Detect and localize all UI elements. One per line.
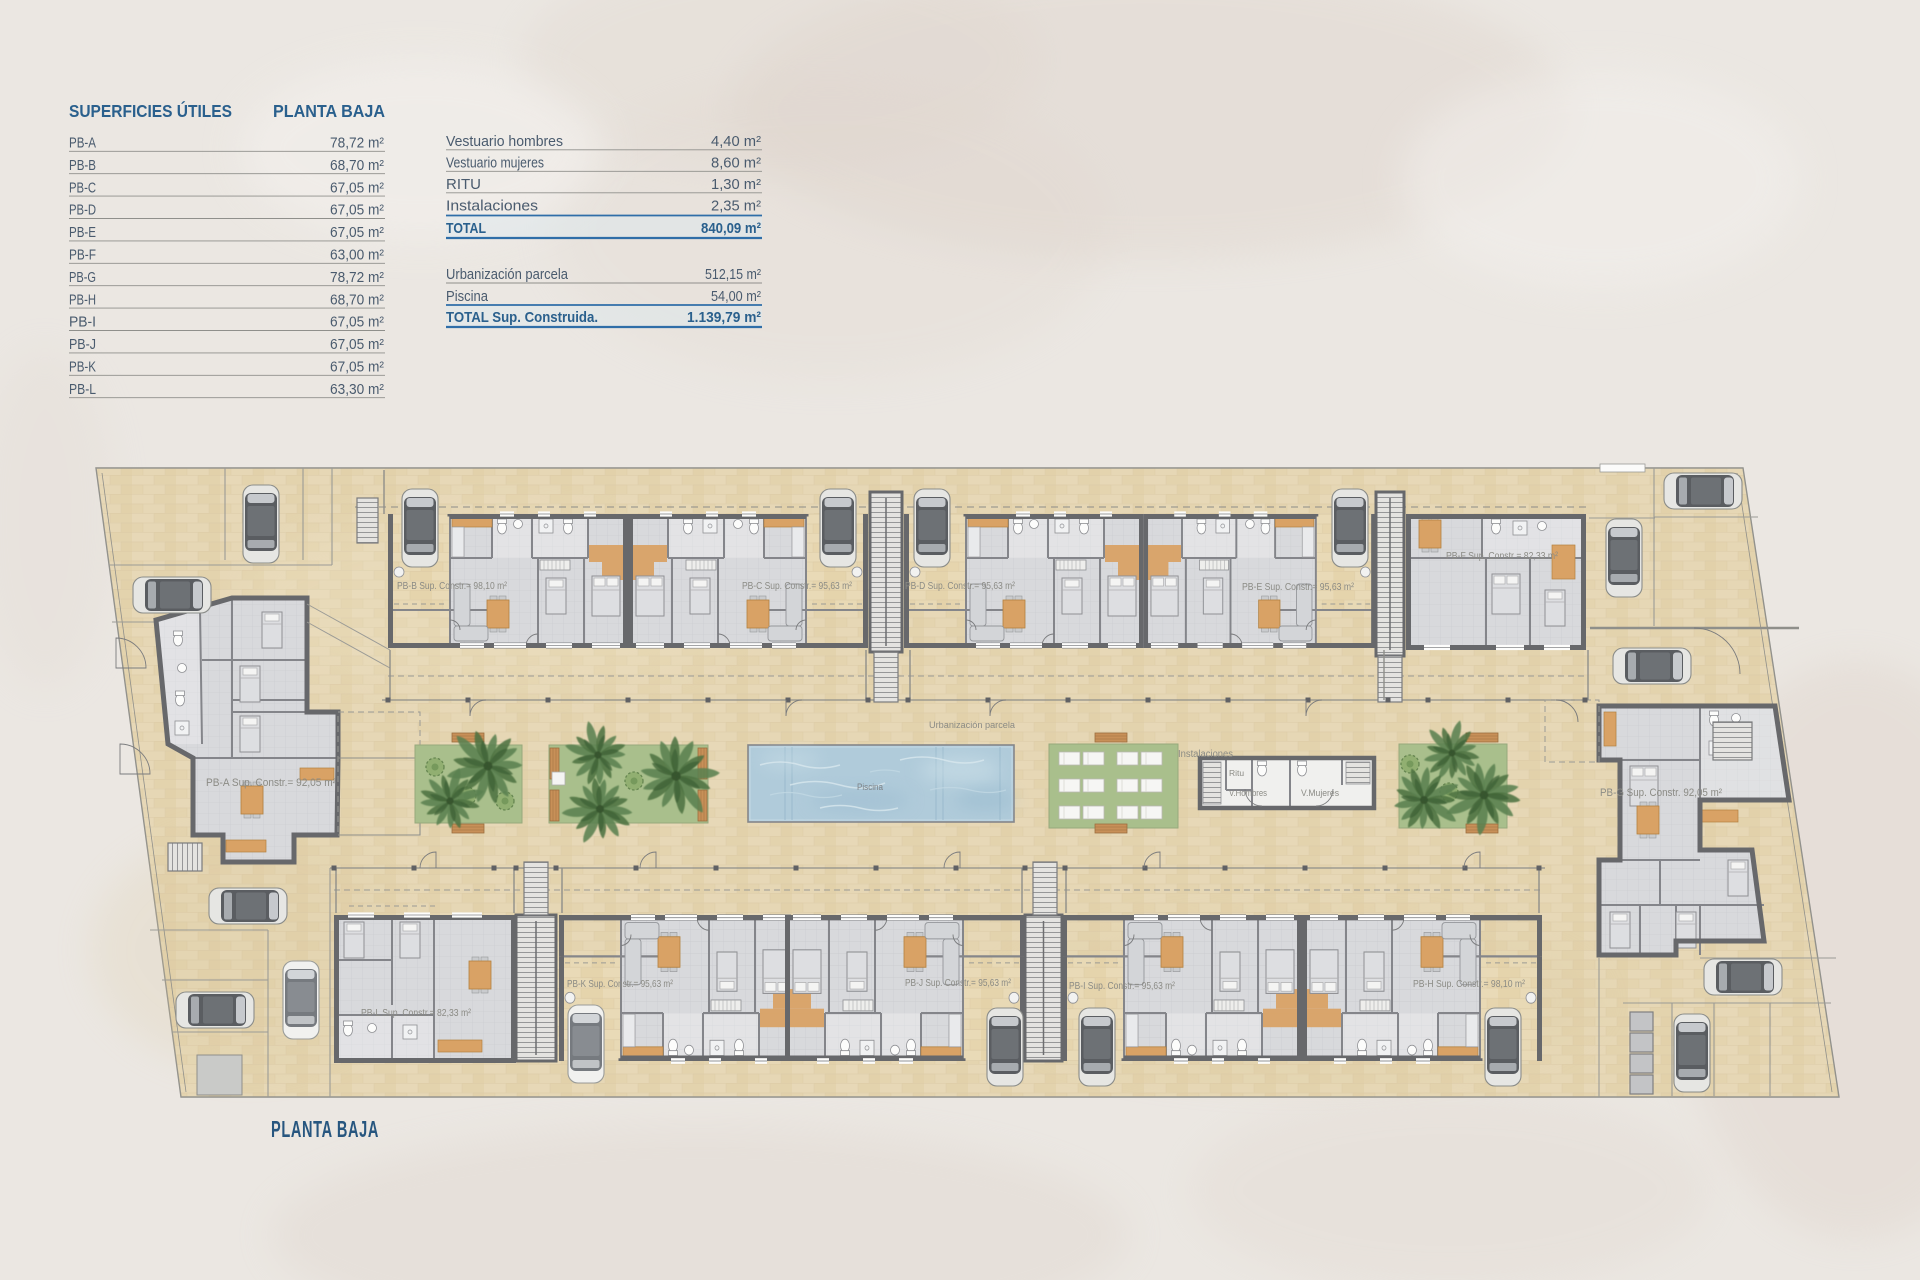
svg-text:78,72 m²: 78,72 m² bbox=[330, 270, 384, 286]
svg-text:PB-J Sup. Constr.= 95,63 m²: PB-J Sup. Constr.= 95,63 m² bbox=[905, 977, 1011, 989]
svg-text:512,15 m²: 512,15 m² bbox=[705, 267, 761, 283]
svg-text:PB-G Sup. Constr. 92,05 m²: PB-G Sup. Constr. 92,05 m² bbox=[1600, 787, 1722, 799]
svg-text:67,05 m²: 67,05 m² bbox=[330, 180, 384, 196]
svg-text:Instalaciones: Instalaciones bbox=[1178, 749, 1233, 760]
svg-text:PB-C Sup. Constr.= 95,63 m²: PB-C Sup. Constr.= 95,63 m² bbox=[742, 580, 852, 592]
svg-text:54,00 m²: 54,00 m² bbox=[711, 289, 761, 305]
svg-text:PB-L: PB-L bbox=[69, 382, 96, 398]
svg-text:PB-L Sup. Constr.= 82,33 m²: PB-L Sup. Constr.= 82,33 m² bbox=[361, 1007, 471, 1019]
svg-text:PB-B Sup. Constr.= 98,10 m²: PB-B Sup. Constr.= 98,10 m² bbox=[397, 580, 507, 592]
svg-text:840,09 m²: 840,09 m² bbox=[701, 220, 761, 237]
svg-text:PB-D: PB-D bbox=[69, 203, 96, 219]
svg-text:PB-G: PB-G bbox=[69, 270, 96, 286]
svg-text:Ritu: Ritu bbox=[1229, 768, 1244, 778]
svg-text:2,35 m²: 2,35 m² bbox=[711, 199, 761, 215]
svg-text:68,70 m²: 68,70 m² bbox=[330, 158, 384, 174]
svg-text:V.Mujeres: V.Mujeres bbox=[1301, 788, 1339, 798]
svg-text:Vestuario hombres: Vestuario hombres bbox=[446, 134, 563, 150]
svg-text:Instalaciones: Instalaciones bbox=[446, 199, 538, 215]
svg-text:PB-E: PB-E bbox=[69, 225, 96, 241]
svg-text:67,05 m²: 67,05 m² bbox=[330, 225, 384, 241]
svg-text:PB-A: PB-A bbox=[69, 136, 96, 152]
svg-text:PB-I: PB-I bbox=[69, 315, 96, 331]
svg-text:63,30 m²: 63,30 m² bbox=[330, 382, 384, 398]
svg-text:PLANTA BAJA: PLANTA BAJA bbox=[273, 101, 385, 121]
svg-text:4,40 m²: 4,40 m² bbox=[711, 134, 761, 150]
svg-text:PB-I Sup. Constr.= 95,63 m²: PB-I Sup. Constr.= 95,63 m² bbox=[1069, 980, 1175, 992]
svg-text:8,60 m²: 8,60 m² bbox=[711, 156, 761, 172]
svg-text:78,72 m²: 78,72 m² bbox=[330, 136, 384, 152]
svg-text:68,70 m²: 68,70 m² bbox=[330, 292, 384, 308]
svg-text:PB-F Sup. Constr = 82,33 m²: PB-F Sup. Constr = 82,33 m² bbox=[1446, 550, 1558, 562]
svg-text:PB-H: PB-H bbox=[69, 292, 96, 308]
svg-text:RITU: RITU bbox=[446, 177, 481, 193]
svg-text:PB-C: PB-C bbox=[69, 180, 96, 196]
svg-text:PB-A Sup. Constr.= 92,05 m²: PB-A Sup. Constr.= 92,05 m² bbox=[206, 777, 336, 789]
svg-text:Piscina: Piscina bbox=[446, 289, 489, 305]
svg-text:SUPERFICIES ÚTILES: SUPERFICIES ÚTILES bbox=[69, 100, 232, 121]
svg-text:PB-F: PB-F bbox=[69, 248, 96, 264]
svg-text:PLANTA BAJA: PLANTA BAJA bbox=[271, 1116, 379, 1142]
svg-text:1.139,79 m²: 1.139,79 m² bbox=[687, 309, 761, 326]
svg-text:Piscina: Piscina bbox=[857, 782, 883, 792]
svg-text:V.Hombres: V.Hombres bbox=[1229, 788, 1267, 798]
svg-text:Vestuario mujeres: Vestuario mujeres bbox=[446, 156, 544, 172]
svg-text:Urbanización parcela: Urbanización parcela bbox=[446, 267, 569, 283]
svg-text:PB-D Sup. Constr.= 95,63 m²: PB-D Sup. Constr.= 95,63 m² bbox=[905, 580, 1015, 592]
svg-text:PB-H Sup. Constr.= 98,10 m²: PB-H Sup. Constr.= 98,10 m² bbox=[1413, 978, 1525, 990]
svg-text:TOTAL: TOTAL bbox=[446, 220, 486, 237]
svg-text:63,00 m²: 63,00 m² bbox=[330, 248, 384, 264]
svg-text:PB-K Sup. Constr.= 95,63 m²: PB-K Sup. Constr.= 95,63 m² bbox=[567, 978, 673, 990]
svg-text:1,30 m²: 1,30 m² bbox=[711, 177, 761, 193]
svg-text:67,05 m²: 67,05 m² bbox=[330, 315, 384, 331]
svg-text:PB-J: PB-J bbox=[69, 337, 96, 353]
svg-text:PB-E Sup. Constr.= 95,63 m²: PB-E Sup. Constr.= 95,63 m² bbox=[1242, 581, 1354, 593]
svg-text:PB-B: PB-B bbox=[69, 158, 96, 174]
svg-text:67,05 m²: 67,05 m² bbox=[330, 337, 384, 353]
svg-text:PB-K: PB-K bbox=[69, 360, 96, 376]
svg-text:TOTAL Sup. Construida.: TOTAL Sup. Construida. bbox=[446, 309, 598, 326]
svg-text:67,05 m²: 67,05 m² bbox=[330, 360, 384, 376]
svg-text:Urbanización parcela: Urbanización parcela bbox=[929, 720, 1015, 730]
svg-text:67,05 m²: 67,05 m² bbox=[330, 203, 384, 219]
